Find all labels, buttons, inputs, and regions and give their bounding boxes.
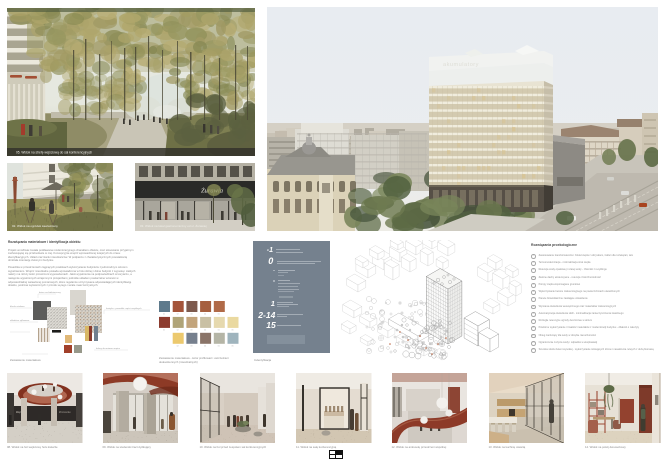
svg-text:04: 04 — [204, 330, 206, 332]
svg-text:02: 02 — [177, 330, 179, 332]
svg-text:beton architektoniczny: beton architektoniczny — [39, 291, 62, 294]
svg-text:02. Widok na ogródek kawiarni: 02. Widok na ogródek kawiarniany — [12, 224, 58, 228]
svg-text:06: 06 — [232, 345, 234, 347]
svg-text:02: 02 — [177, 345, 179, 347]
svg-text:kolory akcentowe wnętrz: kolory akcentowe wnętrz — [96, 347, 120, 350]
svg-text:05: 05 — [218, 330, 220, 332]
svg-text:01: 01 — [163, 314, 165, 316]
svg-text:05. Widok na strefę wejściową: 05. Widok na strefę wejściową do sal kon… — [16, 151, 92, 155]
svg-text:05: 05 — [218, 345, 220, 347]
svg-text:03. Widok na lokal gastronomi: 03. Widok na lokal gastronomiczny od ul.… — [140, 223, 207, 228]
svg-text:03: 03 — [190, 314, 192, 316]
svg-text:akumulatory: akumulatory — [443, 62, 479, 68]
svg-text:05: 05 — [218, 314, 220, 316]
svg-text:lastryko - posadzki części wsp: lastryko - posadzki części wspólnych — [106, 307, 142, 310]
svg-text:04: 04 — [204, 345, 206, 347]
svg-text:04: 04 — [204, 314, 206, 316]
svg-text:06: 06 — [232, 330, 234, 332]
svg-text:03: 03 — [190, 345, 192, 347]
svg-text:okładzina ryflowana: okładzina ryflowana — [10, 319, 30, 322]
svg-text:01: 01 — [163, 330, 165, 332]
svg-text:02: 02 — [177, 314, 179, 316]
svg-text:03: 03 — [190, 330, 192, 332]
svg-text:Rzęśnia: Rzęśnia — [15, 410, 26, 414]
svg-text:blacha stalowa: blacha stalowa — [10, 305, 25, 308]
svg-text:Pracownia: Pracownia — [58, 411, 71, 414]
